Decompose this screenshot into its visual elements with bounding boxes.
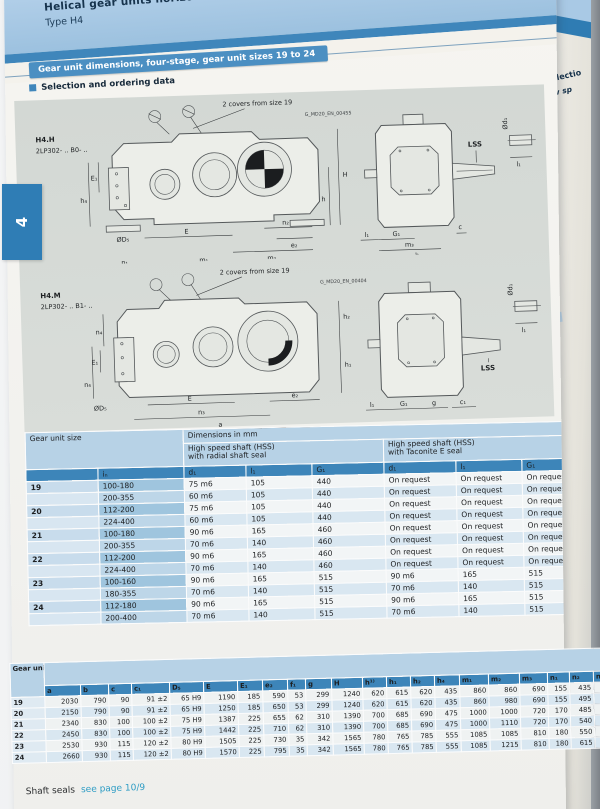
column-header-h₁: h₁: [386, 676, 410, 688]
value-cell: 225: [239, 724, 264, 736]
column-header-m₁: m₁: [459, 674, 488, 686]
size-cell: 22: [12, 730, 46, 742]
value-cell: 1565: [333, 732, 364, 744]
corner-header: Gear unit size: [10, 663, 45, 698]
value-cell: 1190: [204, 692, 238, 704]
catalog-photo: Selectio Low sp Type H4SH Type H4D H4D H…: [0, 0, 600, 809]
column-header-g: g: [305, 678, 331, 690]
value-cell: 615: [571, 737, 595, 749]
value-cell: On request: [523, 506, 566, 519]
dim-n4b: n₄: [84, 381, 91, 389]
value-cell: 765: [388, 742, 412, 754]
value-cell: 930: [82, 750, 110, 762]
dim-m3: m₃: [405, 241, 415, 249]
overall-dimensions-table: Gear unit size abcc₁D₅EE₁e₂f₁gHh¹⁾h₁h₂h₄…: [9, 646, 600, 764]
value-cell: 555: [436, 730, 461, 742]
value-cell: 1505: [205, 736, 239, 748]
dim-e2: e₂: [291, 241, 298, 249]
value-cell: 475: [435, 708, 460, 720]
value-cell: 495: [570, 693, 594, 705]
value-cell: 650: [263, 701, 288, 713]
value-cell: 65 H9: [170, 703, 204, 715]
value-cell: 342: [307, 744, 333, 756]
value-cell: 155: [548, 694, 570, 706]
value-cell: 550: [571, 726, 595, 738]
dim-n2: n₂: [282, 218, 289, 226]
value-cell: 620: [363, 699, 387, 711]
value-cell: 700: [363, 710, 387, 722]
value-cell: 1215: [490, 739, 521, 751]
value-cell: 720: [520, 716, 548, 728]
value-cell: 730: [264, 734, 289, 746]
subheader-G₁: G₁: [522, 458, 566, 471]
value-cell: 185: [238, 702, 263, 714]
value-cell: 795: [264, 745, 289, 757]
value-cell: 1565: [333, 743, 364, 755]
value-cell: 1790: [595, 737, 600, 749]
value-cell: 860: [460, 685, 489, 697]
value-cell: 170: [548, 705, 570, 717]
corner-header: Gear unit size: [25, 429, 184, 469]
front-view: ØD₅ E n₂ e₂ m₂ m₁ a n₁ f₁ E₁ h₄ H h: [77, 101, 350, 267]
dim-l1: l₁: [364, 231, 369, 239]
value-cell: 170: [548, 716, 570, 728]
value-cell: 555: [436, 741, 461, 753]
size-cell: 21: [11, 719, 45, 731]
column-header-E₁: E₁: [237, 680, 262, 692]
column-header-f₁: f₁: [287, 679, 305, 690]
size-cell: 23: [12, 741, 46, 753]
value-cell: 765: [388, 731, 412, 743]
size-cell: 24: [12, 752, 46, 764]
value-cell: 860: [489, 684, 520, 696]
dim-c1: c₁: [460, 398, 467, 406]
dim-E: E: [184, 228, 188, 236]
value-cell: 1085: [461, 740, 490, 752]
side-view: LSS l₁ G₁ g c₁: [362, 280, 502, 410]
value-cell: 690: [520, 694, 548, 706]
dim-d1: Ød₁: [501, 117, 509, 129]
value-cell: 80 H9: [171, 747, 205, 759]
value-cell: 115: [110, 738, 133, 750]
value-cell: 1390: [333, 721, 364, 733]
value-cell: 90: [109, 694, 132, 706]
value-cell: 700: [364, 721, 388, 733]
value-cell: 690: [411, 719, 435, 731]
column-header-c: c: [108, 683, 131, 695]
group1-line2: with radial shaft seal: [188, 451, 266, 462]
value-cell: 155: [548, 683, 570, 695]
value-cell: 615: [387, 687, 411, 699]
dim-H: H: [343, 171, 348, 179]
value-cell: 1000: [460, 718, 489, 730]
dim-m1: m₁: [199, 256, 209, 264]
value-cell: 1240: [332, 688, 363, 700]
value-cell: 100: [109, 716, 132, 728]
dim-n1: n₁: [121, 258, 128, 266]
value-cell: 780: [364, 732, 388, 744]
value-cell: 299: [306, 689, 332, 701]
column-header-n₂: n₂: [569, 671, 593, 683]
value-cell: 2660: [46, 751, 82, 763]
value-cell: On request: [523, 530, 566, 543]
shaft-detail: Ød₁ l₁: [506, 282, 542, 334]
value-cell: 860: [460, 696, 489, 708]
drawing-h4m: H4.M 2LP302- .. B1- .. 2 covers from siz…: [20, 254, 555, 437]
lss-label: LSS: [481, 364, 495, 372]
value-cell: 620: [411, 686, 435, 698]
chapter-tab: 4: [2, 184, 42, 260]
value-cell: 710: [264, 723, 289, 735]
dim-G1: G₁: [400, 400, 408, 408]
dim-h: h: [321, 195, 325, 203]
value-cell: 90: [109, 705, 132, 717]
order-code: 2LP302- .. B0- ..: [36, 146, 88, 156]
value-cell: 180: [549, 738, 571, 750]
value-cell: 70 m6: [387, 605, 459, 619]
value-cell: 70 m6: [187, 609, 249, 622]
dim-l1: l₁: [522, 326, 527, 334]
value-cell: On request: [523, 542, 566, 555]
value-cell: 1600: [594, 704, 600, 716]
order-code: 2LP302- .. B1- ..: [41, 302, 93, 312]
value-cell: 515: [315, 606, 387, 620]
footer-page-link[interactable]: see page 10/9: [81, 783, 146, 795]
value-cell: 830: [81, 717, 109, 729]
value-cell: 1655: [594, 715, 600, 727]
covers-note: 2 covers from size 19: [220, 266, 290, 276]
value-cell: 685: [387, 709, 411, 721]
column-header-h₂: h₂: [410, 675, 434, 687]
column-header-E: E: [203, 681, 237, 693]
value-cell: 435: [435, 697, 460, 709]
dim-h2: h₂: [343, 313, 350, 321]
value-cell: 435: [435, 686, 460, 698]
value-cell: 53: [288, 690, 306, 701]
value-cell: 120 ±2: [133, 748, 171, 760]
value-cell: 930: [82, 739, 110, 751]
value-cell: 790: [81, 695, 109, 707]
drawing-area: H4.H 2LP302- .. B0- .. 2 covers from siz…: [14, 84, 554, 432]
bullet-square-icon: [29, 84, 36, 91]
value-cell: 810: [521, 738, 549, 750]
column-header-n₃: n₃: [593, 671, 600, 683]
value-cell: On request: [522, 482, 566, 495]
dim-G1: G₁: [392, 230, 400, 238]
value-cell: 225: [239, 735, 264, 747]
value-cell: 225: [238, 713, 263, 725]
column-header-H: H: [331, 677, 362, 689]
dim-c: c: [458, 223, 462, 231]
value-cell: 620: [411, 697, 435, 709]
value-cell: 310: [306, 711, 332, 723]
value-cell: 830: [82, 728, 110, 740]
value-cell: 62: [288, 712, 306, 723]
column-header-e₂: e₂: [262, 679, 287, 691]
dimensions-table-body: 19100-18075 m6105440On requestOn request…: [26, 470, 566, 626]
value-cell: 140: [459, 603, 525, 616]
dim-l1: l₁: [370, 401, 375, 409]
value-cell: 1000: [489, 706, 520, 718]
value-cell: 1000: [460, 707, 489, 719]
model-label: H4.H: [35, 136, 55, 145]
column-header-h₄: h₄: [434, 675, 459, 687]
model-label: H4.M: [40, 292, 61, 301]
value-cell: 1085: [461, 729, 490, 741]
value-cell: 515: [525, 602, 566, 615]
front-view: ØD₅ E e₂ n₃ a n₄ E₁ n₄ h₂ h₁: [81, 269, 354, 434]
dim-l1: l₁: [516, 160, 521, 168]
value-cell: 620: [363, 688, 387, 700]
side-view: LSS l₁ G₁ c m₃ b: [357, 112, 498, 262]
value-cell: 780: [364, 743, 388, 755]
size-cell: 19: [11, 697, 45, 709]
value-cell: 1250: [204, 703, 238, 715]
value-cell: 225: [239, 746, 264, 758]
value-cell: 540: [570, 715, 594, 727]
dim-E: E: [188, 395, 192, 403]
ratio-cell: 200-400: [101, 610, 187, 624]
column-header-m₃: m₃: [519, 672, 547, 684]
value-cell: 65 H9: [170, 692, 204, 704]
column-header-b: b: [80, 684, 108, 696]
value-cell: 1240: [332, 699, 363, 711]
group2-line2: with Taconite E seal: [388, 446, 462, 457]
doc-id: G_MD20_EN_00455: [305, 110, 352, 117]
value-cell: 299: [306, 700, 332, 712]
dim-n3: n₃: [198, 408, 205, 416]
column-header-h¹⁾: h¹⁾: [362, 677, 386, 689]
column-header-m₂: m₂: [488, 673, 519, 685]
value-cell: 180: [549, 727, 571, 739]
value-cell: 80 H9: [171, 736, 205, 748]
value-cell: 1425: [594, 693, 600, 705]
value-cell: 785: [412, 730, 436, 742]
value-cell: 75 H9: [171, 725, 205, 737]
dim-D5: ØD₅: [116, 235, 129, 243]
value-cell: 980: [489, 695, 520, 707]
column-header-D₅: D₅: [169, 681, 203, 693]
value-cell: 1085: [490, 728, 521, 740]
value-cell: 1390: [332, 710, 363, 722]
value-cell: 515: [524, 566, 566, 579]
value-cell: 810: [521, 727, 549, 739]
value-cell: 515: [524, 578, 566, 591]
value-cell: 1365: [594, 682, 600, 694]
value-cell: 342: [307, 733, 333, 745]
dim-D5: ØD₅: [94, 404, 107, 412]
dim-m2: m₂: [267, 254, 277, 262]
drawing-h4h: H4.H 2LP302- .. B0- .. 2 covers from siz…: [14, 84, 549, 267]
value-cell: 35: [289, 734, 307, 745]
value-cell: 435: [570, 682, 594, 694]
dimensions-table-wrap: Gear unit size Dimensions in mm High spe…: [25, 420, 567, 626]
doc-id: G_MD20_EN_00404: [320, 278, 367, 285]
dim-g: g: [432, 399, 436, 407]
value-cell: 1725: [595, 726, 600, 738]
value-cell: On request: [522, 494, 566, 507]
size-cell: [29, 612, 101, 626]
value-cell: 62: [289, 723, 307, 734]
value-cell: 475: [435, 719, 460, 731]
value-cell: 690: [411, 708, 435, 720]
shaft-detail: Ød₁ l₁: [501, 116, 537, 168]
value-cell: 1442: [205, 725, 239, 737]
value-cell: 140: [249, 608, 315, 621]
value-cell: 720: [520, 705, 548, 717]
value-cell: 100: [110, 727, 133, 739]
value-cell: 1387: [204, 714, 238, 726]
value-cell: 790: [81, 706, 109, 718]
value-cell: On request: [522, 470, 566, 483]
value-cell: 785: [412, 741, 436, 753]
overall-dimensions-table-wrap: Gear unit size abcc₁D₅EE₁e₂f₁gHh¹⁾h₁h₂h₄…: [9, 646, 600, 764]
dim-e2: e₂: [291, 391, 298, 399]
value-cell: 185: [238, 691, 263, 703]
footer-label: Shaft seals: [26, 785, 76, 797]
value-cell: 590: [263, 690, 288, 702]
value-cell: On request: [524, 554, 566, 567]
page-footer: Shaft sealssee page 10/9: [26, 783, 146, 797]
value-cell: 115: [110, 749, 133, 761]
value-cell: 35: [289, 745, 307, 756]
dim-n4a: n₄: [95, 328, 102, 336]
dim-h1: h₁: [345, 361, 352, 369]
dim-E1: E₁: [91, 174, 98, 182]
lss-label: LSS: [468, 140, 482, 148]
column-header-n₁: n₁: [547, 672, 569, 684]
size-cell: 20: [11, 708, 45, 720]
covers-note: 2 covers from size 19: [222, 98, 292, 108]
chapter-number: 4: [13, 217, 31, 227]
value-cell: 53: [288, 701, 306, 712]
value-cell: 1110: [489, 717, 520, 729]
value-cell: 310: [307, 722, 333, 734]
value-cell: 485: [570, 704, 594, 716]
dim-d1: Ød₁: [506, 283, 514, 295]
value-cell: 690: [520, 683, 548, 695]
dimensions-table: Gear unit size Dimensions in mm High spe…: [25, 420, 567, 626]
value-cell: On request: [523, 518, 566, 531]
value-cell: 75 H9: [170, 714, 204, 726]
value-cell: 685: [387, 720, 411, 732]
value-cell: 515: [525, 590, 567, 603]
value-cell: 655: [263, 712, 288, 724]
dim-h4: h₄: [80, 197, 87, 205]
value-cell: 615: [387, 698, 411, 710]
value-cell: 1570: [205, 747, 239, 759]
